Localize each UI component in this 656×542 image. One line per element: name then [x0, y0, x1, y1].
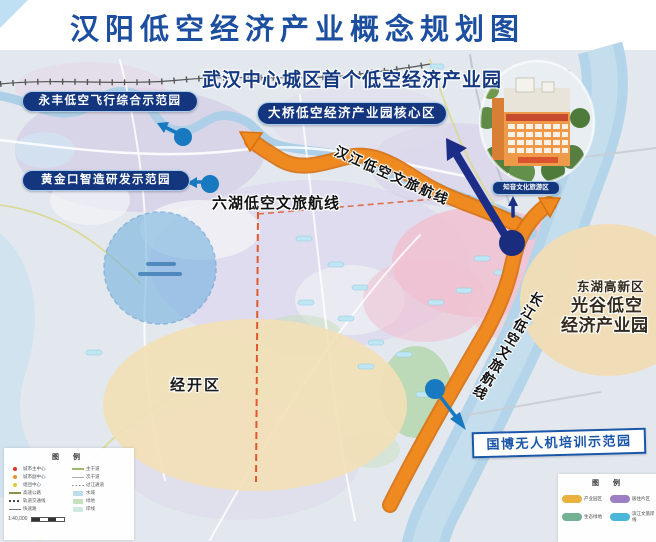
sub-center-dot-icon [8, 474, 21, 480]
rail-line-icon [8, 498, 21, 504]
legend-left-title: 图 例 [8, 452, 130, 462]
legend-item: 高速公路 [8, 489, 67, 497]
scale-text: 1:40,000 [8, 516, 27, 522]
highway-line-icon [8, 490, 21, 496]
riverfront-swatch [610, 513, 630, 521]
planning-map: 汉阳低空经济产业概念规划图 武汉中心城区首个低空经济产业园 永丰低空飞行综合示范… [0, 0, 656, 542]
legend-item: 水域 [71, 489, 130, 497]
legend-item: 轨道交通线 [8, 497, 67, 505]
legend-right-title: 图 例 [562, 478, 656, 488]
legend-item: 组团中心 [8, 481, 67, 489]
legend-item: 城市主中心 [8, 465, 67, 473]
legend-item: 快速路 [8, 505, 67, 513]
crossing-line-icon [71, 482, 84, 488]
arterial-line-icon [71, 466, 84, 472]
legend-item: 岸线 [71, 505, 130, 513]
water-patch-icon [71, 490, 84, 496]
residential-zone-swatch [610, 495, 630, 503]
legend-item: 产业园区 [562, 495, 608, 503]
green-patch-icon [71, 498, 84, 504]
legend-item: 生态绿地 [562, 511, 608, 523]
legend-item: 滨江文旅岸线 [610, 511, 656, 523]
region-label-guanggu-line2: 经济产业园 [561, 311, 649, 336]
legend-left-panel: 图 例 城市主中心 城市副中心 组团中心 高速公路 轨道交通线 快速路 主干道 … [4, 448, 134, 540]
map-scale: 1:40,000 [8, 516, 130, 522]
industry-zone-swatch [562, 495, 582, 503]
corner-decoration [0, 0, 30, 30]
legend-item: 居住片区 [610, 495, 656, 503]
banner-first-park-label: 武汉中心城区首个低空经济产业园 [202, 65, 502, 92]
city-center-dot-icon [8, 466, 21, 472]
secondary-line-icon [71, 474, 84, 480]
callout-zhiyin: 知音文化旅游区 [492, 181, 560, 195]
callout-daqiao-core: 大桥低空经济产业园核心区 [257, 102, 447, 125]
legend-item: 次干道 [71, 473, 130, 481]
callout-yongfeng: 永丰低空飞行综合示范园 [22, 91, 198, 112]
legend-item: 过江通道 [71, 481, 130, 489]
marker-daqiao-core [499, 230, 525, 256]
shore-patch-icon [71, 506, 84, 512]
page-title: 汉阳低空经济产业概念规划图 [70, 6, 525, 48]
marker-guobo [425, 379, 445, 399]
eco-green-swatch [562, 513, 582, 521]
marker-huangjinkou [201, 175, 219, 193]
route-label-liuhu: 六湖低空文旅航线 [212, 192, 340, 213]
legend-item: 主干道 [71, 465, 130, 473]
legend-right-panel: 图 例 产业园区 居住片区 生态绿地 滨江文旅岸线 [558, 474, 656, 542]
marker-yongfeng [174, 128, 192, 146]
scale-bar [31, 517, 65, 522]
expressway-line-icon [8, 506, 21, 512]
lake-demo-circle [104, 212, 216, 324]
callout-guobo: 国博无人机培训示范园 [472, 428, 647, 459]
legend-item: 绿地 [71, 497, 130, 505]
legend-item: 城市副中心 [8, 473, 67, 481]
region-label-jingkai: 经开区 [170, 374, 221, 395]
callout-huangjinkou: 黄金口智造研发示范园 [22, 170, 190, 191]
cluster-center-dot-icon [8, 482, 21, 488]
